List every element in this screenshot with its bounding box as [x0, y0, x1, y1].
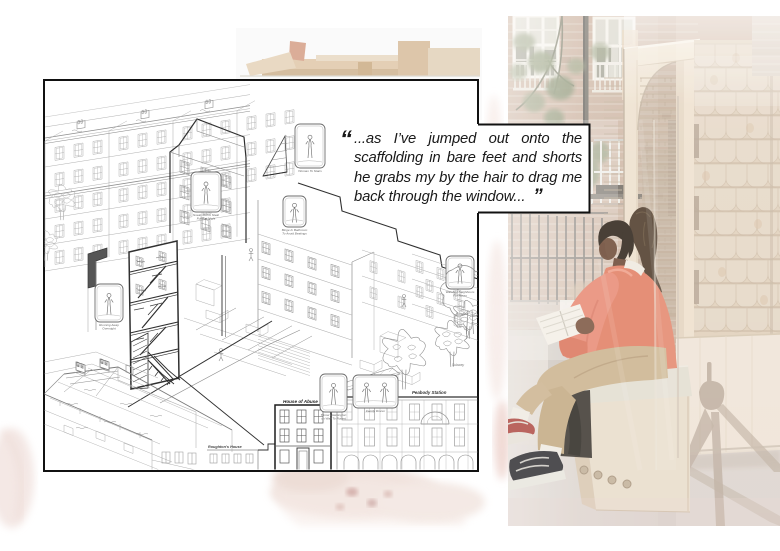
- svg-text:Woman To Stairs: Woman To Stairs: [298, 169, 322, 173]
- svg-text:Peabody Station: Peabody Station: [412, 390, 447, 395]
- svg-text:For Hours: For Hours: [453, 294, 467, 298]
- svg-text:To Avoid Beatings: To Avoid Beatings: [282, 232, 307, 236]
- svg-text:House of Abuse: House of Abuse: [283, 399, 318, 404]
- svg-text:Overnight: Overnight: [102, 327, 116, 331]
- svg-text:Food at Night: Food at Night: [197, 217, 216, 221]
- svg-text:Roughton’s House: Roughton’s House: [208, 445, 242, 449]
- svg-text:Family Dinner: Family Dinner: [366, 409, 386, 413]
- svg-text:Subway: Subway: [452, 363, 464, 367]
- svg-text:on Wall To Robert: on Wall To Robert: [321, 417, 346, 421]
